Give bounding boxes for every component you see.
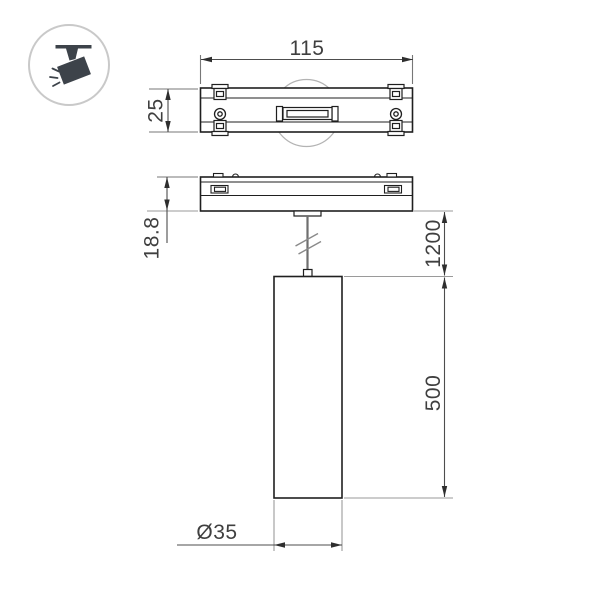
dimension-adapter-height: 18.8	[141, 177, 199, 259]
arrowhead-down-icon	[164, 200, 169, 211]
contact-slot	[277, 107, 339, 122]
suspension-wire	[296, 216, 322, 277]
arrowhead-up-icon	[164, 177, 169, 188]
clip-inner	[393, 124, 400, 129]
technical-drawing: 115 25	[0, 0, 600, 600]
dimension-track-width: 115	[201, 37, 414, 84]
slot-side-left	[277, 107, 283, 122]
clip-tab-side	[387, 174, 397, 178]
suspension-canopy	[294, 211, 321, 216]
dimension-label-suspension-length: 1200	[422, 219, 445, 268]
slot-side-right	[332, 107, 338, 122]
arrowhead-right-icon	[331, 542, 342, 547]
arrowhead-up-icon	[442, 278, 447, 289]
dimension-label-body-diameter: Ø35	[196, 521, 237, 544]
dimension-body-length: 500	[344, 277, 453, 499]
arrowhead-right-icon	[402, 57, 413, 62]
dimension-suspension-length: 1200	[414, 211, 453, 276]
arrowhead-left-icon	[274, 542, 285, 547]
track-adapter-side-view	[201, 174, 413, 217]
clip-tab	[212, 132, 228, 136]
break-mark	[299, 242, 322, 255]
dimension-label-track-depth: 25	[145, 98, 168, 122]
lamp-cylinder-body	[274, 277, 342, 499]
dimension-body-diameter: Ø35	[177, 500, 342, 551]
slot-inner	[287, 111, 328, 118]
clip-inner	[217, 92, 224, 97]
track-adapter-top-view	[201, 80, 413, 147]
dimension-label-adapter-height: 18.8	[141, 217, 164, 260]
clip-tab	[388, 132, 404, 136]
clip-inner	[217, 124, 224, 129]
icon-track-bar	[56, 45, 92, 49]
slot-side-inner	[215, 187, 226, 191]
clip-inner	[393, 92, 400, 97]
slot-side-inner	[388, 187, 399, 191]
clip-tab-side	[214, 174, 224, 178]
track-spotlight-icon	[29, 25, 109, 105]
drawing-canvas: 115 25	[0, 0, 600, 600]
dimension-label-track-width: 115	[290, 37, 325, 60]
dimension-label-body-length: 500	[422, 375, 445, 412]
wire-grip	[304, 270, 313, 277]
arrowhead-down-icon	[442, 486, 447, 497]
dimension-track-depth: 25	[145, 89, 199, 132]
arrowhead-left-icon	[201, 57, 212, 62]
